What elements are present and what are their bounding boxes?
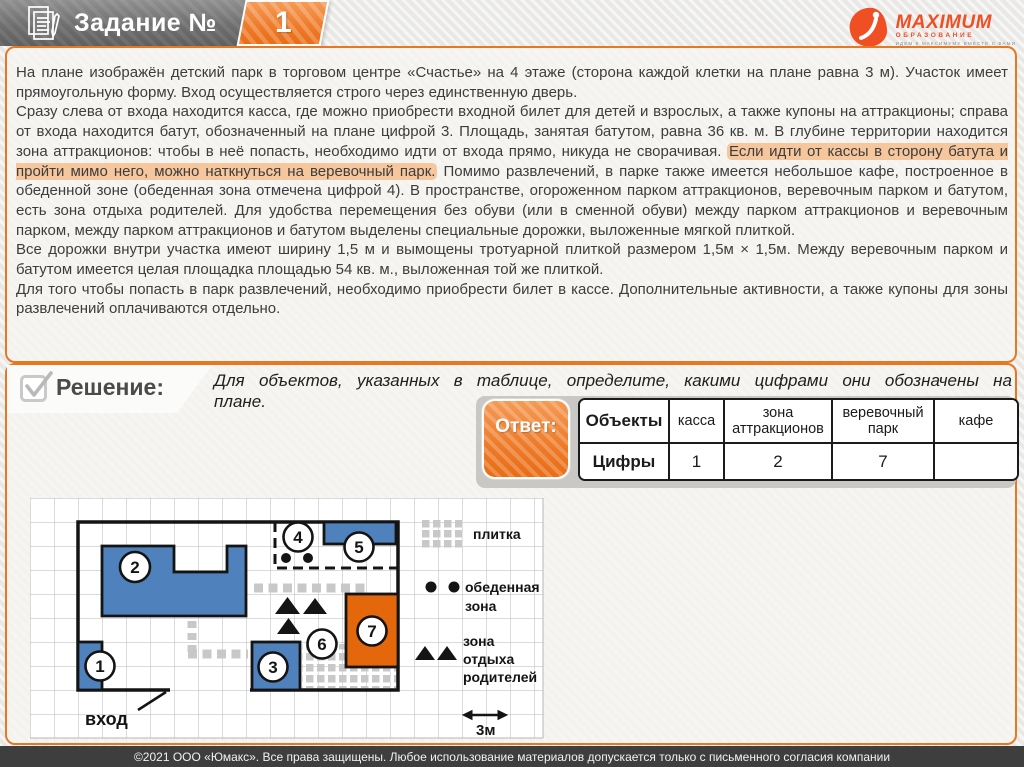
- task-number: 1: [275, 6, 292, 40]
- legend-rest-label-3: родителей: [463, 669, 537, 685]
- scale-label: 3м: [476, 722, 495, 739]
- plan-marker-6: 6: [308, 630, 337, 659]
- answer-digit-ropepark: 7: [833, 444, 935, 479]
- legend-dining-label-1: обеденная: [465, 579, 540, 595]
- task-paragraph: Для того чтобы попасть в парк развлечени…: [16, 280, 1008, 319]
- legend-tile-label: плитка: [473, 526, 521, 542]
- plan-marker-7: 7: [358, 617, 387, 646]
- answer-table-col-kassa: касса: [670, 400, 725, 444]
- park-plan: 1 2 3 4 5 6 7 вход плитка обеденная зона…: [30, 498, 544, 739]
- svg-text:7: 7: [367, 622, 376, 641]
- legend-rest-label-1: зона: [463, 633, 495, 649]
- plan-marker-5: 5: [345, 533, 374, 562]
- footer-bar: ©2021 ООО «Юмакс». Все права защищены. Л…: [0, 746, 1024, 767]
- svg-text:5: 5: [354, 538, 363, 557]
- solution-label: Решение:: [56, 374, 164, 401]
- answer-button: Ответ:: [482, 399, 570, 479]
- legend-dining-dot: [426, 582, 437, 593]
- svg-text:4: 4: [293, 528, 303, 547]
- task-paragraph: Все дорожки внутри участка имеют ширину …: [16, 240, 1008, 279]
- answer-digit-cafe: [935, 444, 1017, 479]
- dining-dot: [303, 553, 313, 563]
- legend-dining-dot: [449, 582, 460, 593]
- task-label: Задание №: [74, 9, 217, 38]
- answer-table-digits-label: Цифры: [580, 444, 670, 479]
- checkbox-check-icon: [20, 371, 54, 403]
- entrance-label: вход: [85, 709, 128, 729]
- svg-text:3: 3: [268, 658, 277, 677]
- legend-dining-label-2: зона: [465, 598, 497, 614]
- logo-subtitle: ОБРАЗОВАНИЕ: [896, 32, 1016, 40]
- task-paragraph: Сразу слева от входа находится касса, гд…: [16, 102, 1008, 240]
- plan-marker-3: 3: [259, 653, 288, 682]
- plan-marker-4: 4: [284, 523, 313, 552]
- task-paragraph: На плане изображён детский парк в торгов…: [16, 63, 1008, 102]
- answer-table: Объекты касса зона аттракционов веревочн…: [578, 398, 1019, 481]
- svg-text:2: 2: [130, 558, 139, 577]
- brand-logo: MAXIMUM ОБРАЗОВАНИЕ ИДЕМ К МАКСИМУМУ ВМЕ…: [846, 6, 1016, 50]
- solution-prompt-line1: Для объектов, указанных в таблице, опред…: [214, 371, 1012, 392]
- answer-table-col-attractions: зона аттракционов: [725, 400, 833, 444]
- plan-marker-1: 1: [86, 652, 115, 681]
- answer-table-objects-label: Объекты: [580, 400, 670, 444]
- svg-text:1: 1: [95, 657, 104, 676]
- answer-table-col-ropepark: веревочный парк: [833, 400, 935, 444]
- logo-brand: MAXIMUM: [896, 14, 1016, 32]
- task-number-flag: 1: [237, 0, 330, 46]
- header-band: Задание №: [0, 0, 248, 46]
- legend-rest-label-2: отдыха: [463, 651, 515, 667]
- dining-dot: [281, 553, 291, 563]
- answer-table-col-cafe: кафе: [935, 400, 1017, 444]
- footer-copyright: ©2021 ООО «Юмакс». Все права защищены. Л…: [134, 750, 890, 764]
- document-icon: [24, 3, 64, 43]
- answer-digit-kassa: 1: [670, 444, 725, 479]
- logo-icon: [846, 6, 892, 50]
- plan-marker-2: 2: [120, 552, 150, 582]
- svg-text:6: 6: [317, 635, 326, 654]
- task-text: На плане изображён детский парк в торгов…: [16, 63, 1008, 319]
- answer-digit-attractions: 2: [725, 444, 833, 479]
